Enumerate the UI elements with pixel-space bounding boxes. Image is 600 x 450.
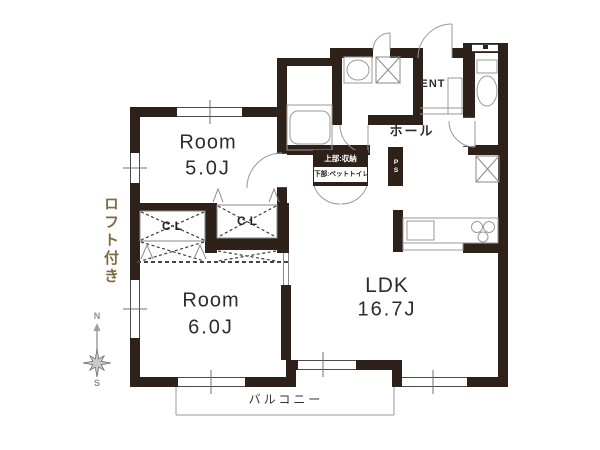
wall-cl-divider [205, 203, 217, 253]
closet2-label: CL [237, 214, 261, 228]
room5-size-label: 5.0J [185, 158, 231, 181]
ldk-size-label: 16.7J [358, 299, 417, 322]
storage-note-lower: 下部:ペットトイレ [314, 167, 367, 182]
wall-kitchen-bottom [463, 243, 508, 253]
washbasin-icon [344, 57, 372, 83]
wall-toilet-left [463, 43, 475, 117]
wall-cl-top [130, 203, 215, 211]
window-ldk-bottom-mid [298, 360, 356, 370]
wall-washroom-bottom-a [332, 115, 340, 125]
compass-icon [83, 323, 111, 377]
room6-size-label: 6.0J [188, 317, 234, 340]
thin-line-layer [0, 0, 600, 450]
wall-cl2-right [277, 203, 289, 253]
wall-washroom-left [332, 48, 342, 125]
window-room6-left [130, 280, 140, 338]
closet1-label: CL [162, 219, 186, 233]
window-room6-bottom [178, 377, 245, 387]
wall-outer-left [130, 107, 140, 387]
window-toilet-latch [483, 45, 488, 49]
wall-room6-ldk [281, 285, 291, 360]
balcony-label: バルコニー [249, 391, 324, 408]
storage-note-box: 上部:収納 下部:ペットトイレ [313, 150, 368, 186]
room5-name-label: Room [179, 132, 236, 155]
bathtub-icon [287, 105, 332, 150]
entrance-door-arc [418, 24, 452, 58]
entrance-label: ENT [421, 78, 446, 90]
door-gap-room5 [277, 153, 287, 188]
wall-outer-right [498, 43, 508, 387]
floorplan-canvas: 上部:収納 下部:ペットトイレ PS [0, 0, 600, 450]
sliding-door-room6-ldk [284, 253, 289, 285]
compass-south-label: S [94, 378, 100, 388]
room6-name-label: Room [182, 290, 239, 313]
pillar-box-icon [476, 156, 499, 182]
window-room5-top [177, 107, 242, 117]
wall-room5-right-lower [277, 188, 287, 203]
wall-kitchen-stub [393, 210, 403, 252]
wall-room5-right-upper [277, 58, 287, 153]
door-gap-toilet [463, 117, 475, 147]
window-ldk-bottom-right [402, 377, 467, 387]
pipe-shaft-label: PS [392, 159, 400, 175]
hall-label: ホール [389, 121, 434, 140]
compass-north-label: N [94, 311, 101, 321]
window-room5-left [130, 153, 140, 183]
wall-step-left [286, 360, 296, 387]
storage-note-upper: 上部:収納 [314, 151, 367, 167]
pipe-shaft: PS [388, 147, 403, 186]
ldk-name-label: LDK [365, 274, 409, 298]
loft-label: ロフト付き [100, 196, 121, 286]
toilet-icon [477, 60, 497, 106]
washer-box-icon [376, 57, 400, 83]
